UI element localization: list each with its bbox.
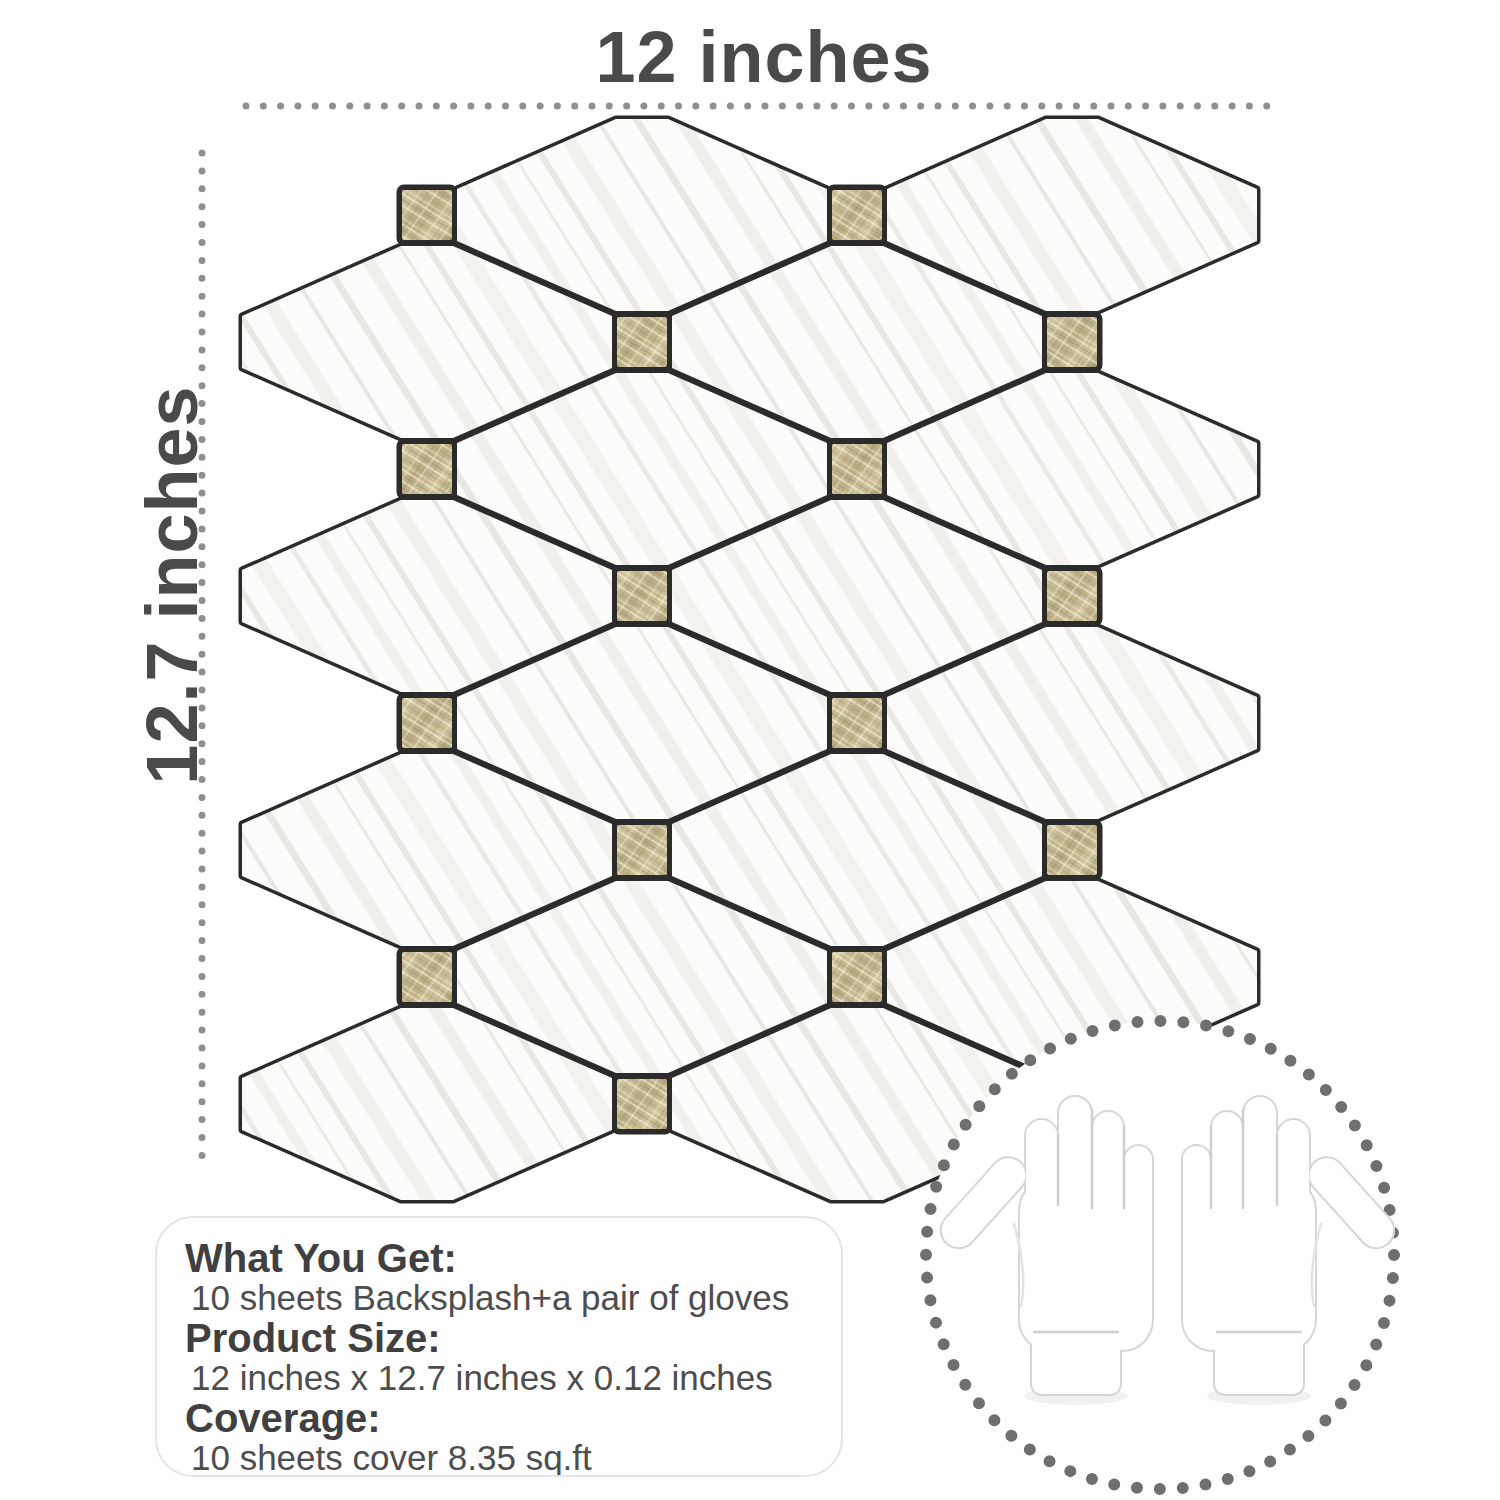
what-you-get-value: 10 sheets Backsplash+a pair of gloves (185, 1278, 827, 1318)
gold-dot-scratches (402, 444, 452, 494)
coverage-heading: Coverage: (185, 1398, 827, 1438)
gold-dot-scratches (1047, 317, 1097, 367)
gold-dot-scratches (617, 571, 667, 621)
gold-dot-scratches (1047, 571, 1097, 621)
product-info-box: What You Get: 10 sheets Backsplash+a pai… (155, 1216, 843, 1477)
coverage-value: 10 sheets cover 8.35 sq.ft (185, 1438, 827, 1477)
product-size-value: 12 inches x 12.7 inches x 0.12 inches (185, 1358, 827, 1398)
width-dimension-label: 12 inches (240, 14, 1288, 100)
gold-dot-scratches (402, 698, 452, 748)
gold-dot-scratches (832, 952, 882, 1002)
gold-dot-scratches (832, 698, 882, 748)
gold-dot-scratches (402, 952, 452, 1002)
product-size-heading: Product Size: (185, 1318, 827, 1358)
gold-dot-scratches (832, 190, 882, 240)
gloves-circle (926, 1021, 1400, 1489)
height-dimension-label: 12.7 inches (132, 375, 212, 795)
gold-dot-scratches (402, 190, 452, 240)
product-infographic: 12 inches 12.7 inches What You Get: 10 s… (0, 0, 1500, 1500)
gold-dot-scratches (617, 317, 667, 367)
gold-dot-scratches (617, 825, 667, 875)
gold-dot-scratches (617, 1079, 667, 1129)
gold-dot-scratches (832, 444, 882, 494)
gold-dot-scratches (1047, 825, 1097, 875)
what-you-get-heading: What You Get: (185, 1238, 827, 1278)
